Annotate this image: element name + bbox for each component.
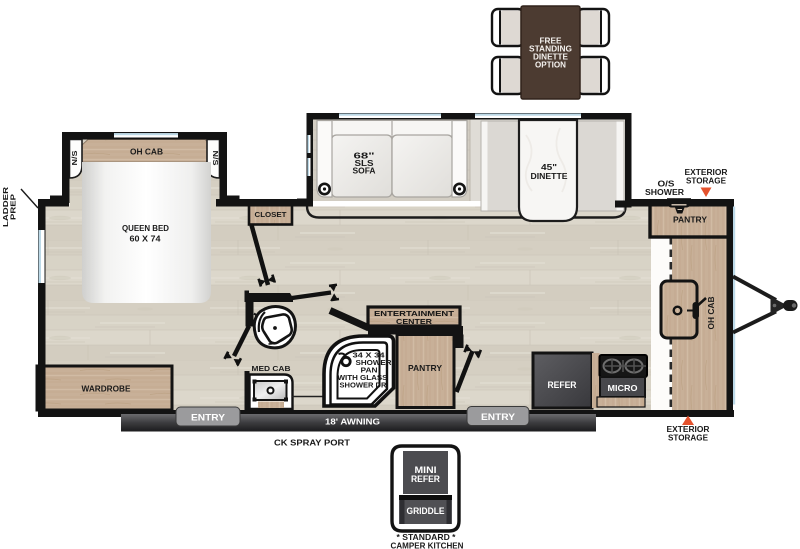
svg-text:34 X 34: 34 X 34 [353, 353, 385, 360]
svg-text:OH CAB: OH CAB [707, 296, 716, 329]
svg-text:WARDROBE: WARDROBE [82, 384, 131, 394]
svg-text:ENTRY: ENTRY [481, 412, 516, 423]
svg-text:SHOWER: SHOWER [645, 188, 684, 197]
svg-text:MICRO: MICRO [608, 383, 638, 393]
svg-text:CK SPRAY PORT: CK SPRAY PORT [274, 438, 351, 448]
svg-text:SHOWER DR.: SHOWER DR. [340, 383, 389, 390]
svg-text:MED CAB: MED CAB [252, 364, 292, 373]
svg-text:PREP: PREP [9, 194, 18, 220]
svg-text:CENTER: CENTER [396, 317, 433, 326]
svg-text:PANTRY: PANTRY [408, 363, 442, 373]
svg-text:PANTRY: PANTRY [673, 215, 707, 225]
svg-text:REFER: REFER [548, 380, 577, 390]
svg-text:DINETTE: DINETTE [531, 171, 568, 181]
svg-text:REFER: REFER [411, 474, 440, 484]
svg-text:N/S: N/S [72, 150, 79, 165]
svg-text:STORAGE: STORAGE [686, 177, 727, 186]
svg-text:GRIDDLE: GRIDDLE [407, 506, 445, 517]
svg-text:QUEEN BED: QUEEN BED [122, 223, 169, 233]
svg-text:60 X 74: 60 X 74 [130, 234, 161, 244]
svg-text:OH CAB: OH CAB [130, 147, 163, 157]
svg-text:CAMPER KITCHEN: CAMPER KITCHEN [391, 541, 464, 549]
svg-text:OPTION: OPTION [535, 60, 566, 70]
svg-text:PAN: PAN [361, 368, 378, 375]
svg-text:N/S: N/S [211, 151, 218, 166]
svg-text:18' AWNING: 18' AWNING [325, 417, 380, 427]
svg-text:STORAGE: STORAGE [668, 434, 709, 443]
svg-text:SHOWER: SHOWER [356, 360, 392, 367]
svg-text:WITH GLASS: WITH GLASS [338, 375, 388, 382]
svg-text:CLOSET: CLOSET [255, 210, 287, 219]
svg-text:ENTRY: ENTRY [191, 413, 226, 424]
svg-text:SOFA: SOFA [353, 167, 376, 176]
